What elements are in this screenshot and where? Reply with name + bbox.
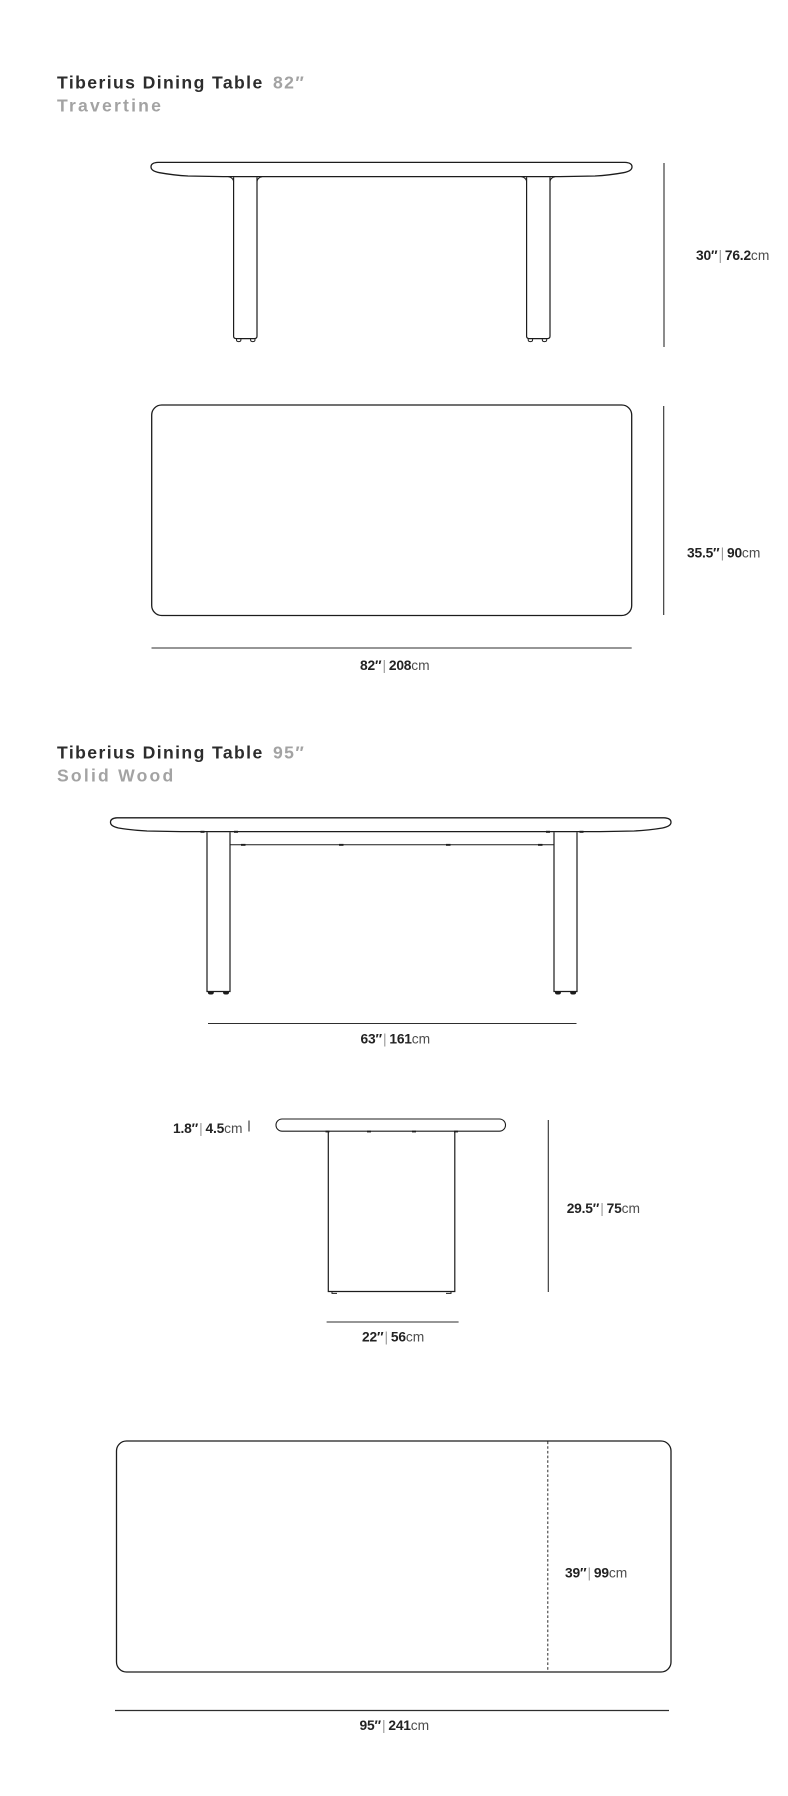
svg-text:63″ | 161cm: 63″ | 161cm	[361, 1032, 431, 1047]
svg-text:22″ | 56cm: 22″ | 56cm	[362, 1329, 424, 1344]
svg-text:1.8″ | 4.5cm: 1.8″ | 4.5cm	[173, 1121, 243, 1136]
svg-text:29.5″ | 75cm: 29.5″ | 75cm	[567, 1201, 640, 1216]
svg-text:39″ | 99cm: 39″ | 99cm	[565, 1566, 627, 1581]
svg-text:Tiberius Dining Table: Tiberius Dining Table	[57, 743, 264, 763]
svg-text:35.5″ | 90cm: 35.5″ | 90cm	[687, 545, 760, 560]
svg-text:30″ | 76.2cm: 30″ | 76.2cm	[696, 248, 769, 263]
svg-text:82″ | 208cm: 82″ | 208cm	[360, 658, 430, 673]
svg-text:Tiberius Dining Table: Tiberius Dining Table	[57, 73, 264, 93]
svg-text:Travertine: Travertine	[57, 95, 163, 115]
svg-text:95″: 95″	[273, 743, 305, 763]
svg-text:Solid Wood: Solid Wood	[57, 765, 175, 785]
svg-text:82″: 82″	[273, 73, 305, 93]
svg-text:95″ | 241cm: 95″ | 241cm	[360, 1718, 430, 1733]
